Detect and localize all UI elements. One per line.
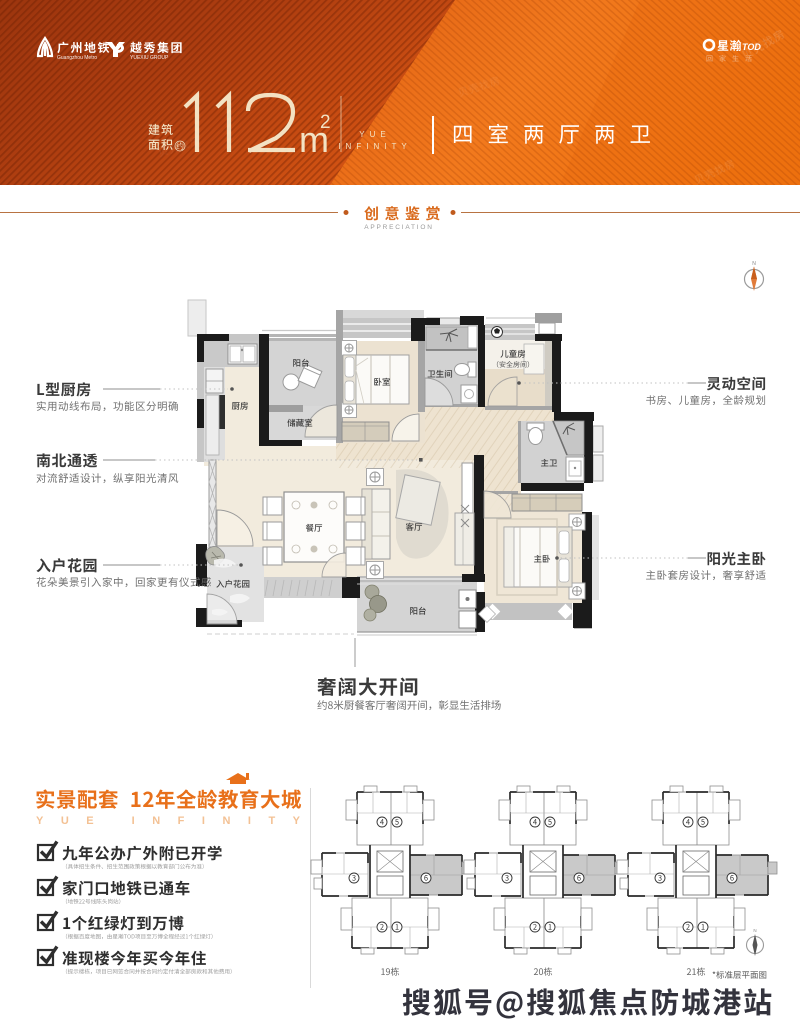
svg-text:YUEXIU GROUP: YUEXIU GROUP (130, 55, 169, 61)
svg-text:N: N (753, 928, 756, 933)
svg-text:YUE INFINITY: YUE INFINITY (36, 815, 318, 827)
svg-text:Guangzhou Metro: Guangzhou Metro (57, 55, 97, 61)
svg-text:N: N (752, 261, 756, 267)
svg-text:INFINITY: INFINITY (338, 142, 411, 151)
svg-text:APPRECIATION: APPRECIATION (364, 224, 434, 231)
svg-text:YUE: YUE (359, 130, 390, 139)
svg-text:2: 2 (320, 112, 331, 133)
svg-text:TOD: TOD (742, 42, 761, 52)
